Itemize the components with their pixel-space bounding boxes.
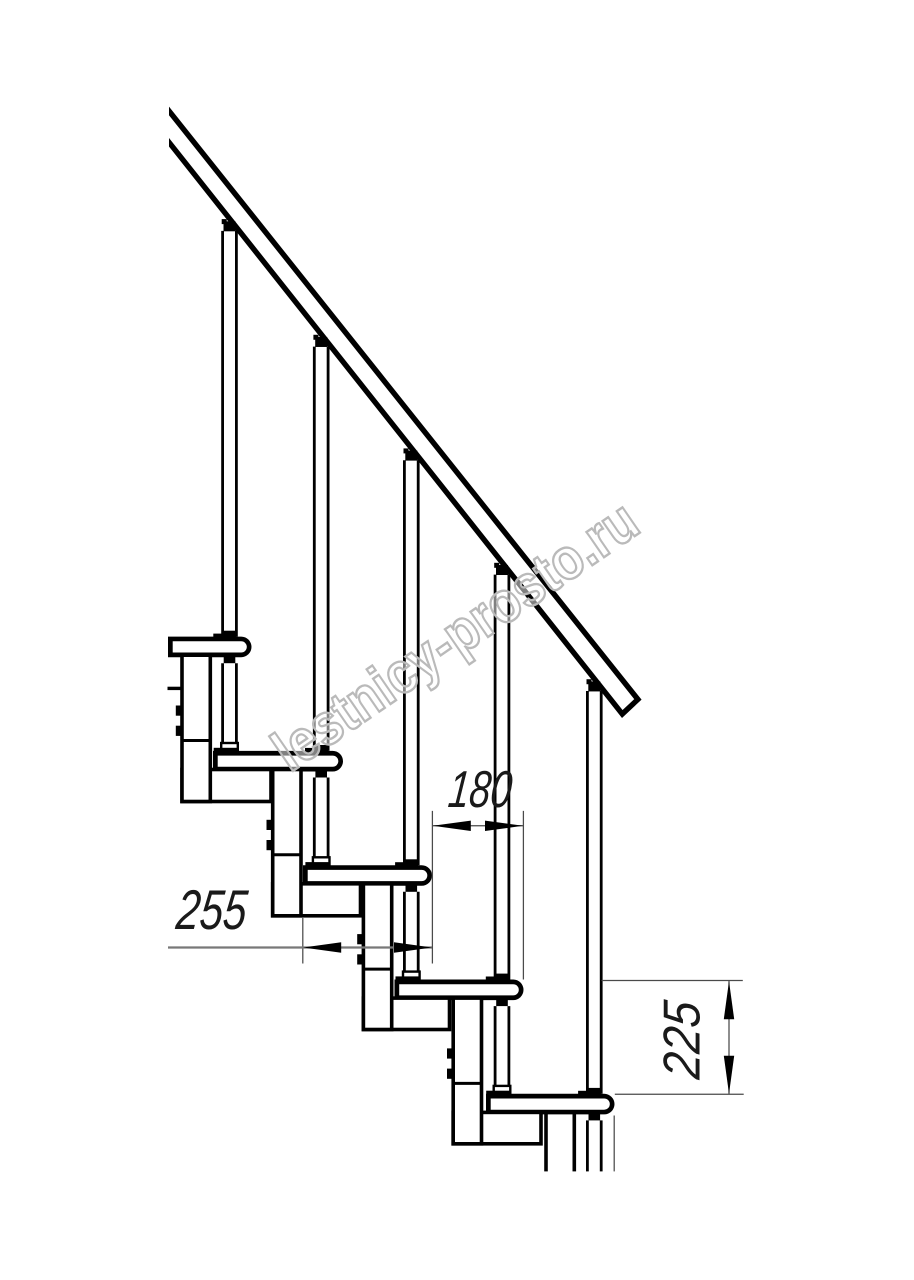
svg-text:lestnicy-prosto.ru: lestnicy-prosto.ru	[261, 488, 651, 784]
svg-text:180: 180	[446, 761, 515, 819]
svg-text:225: 225	[654, 997, 712, 1082]
svg-text:255: 255	[173, 878, 251, 941]
